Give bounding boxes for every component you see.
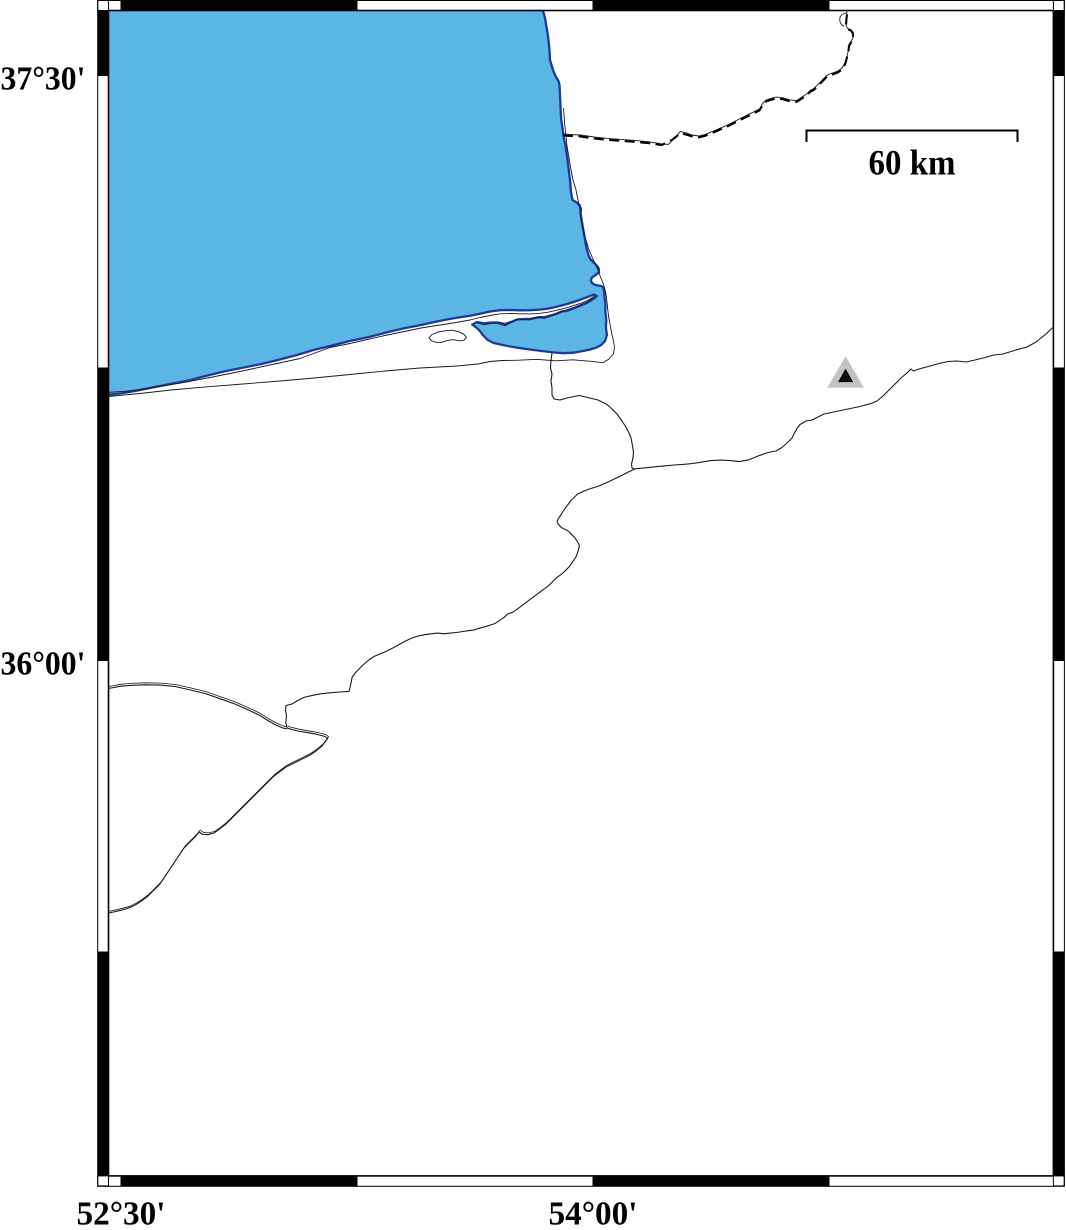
svg-text:60 km: 60 km [869, 143, 956, 183]
svg-text:54°00': 54°00' [549, 1196, 638, 1226]
svg-text:52°30': 52°30' [77, 1196, 166, 1226]
svg-text:37°30': 37°30' [1, 61, 86, 98]
svg-text:36°00': 36°00' [1, 646, 86, 683]
